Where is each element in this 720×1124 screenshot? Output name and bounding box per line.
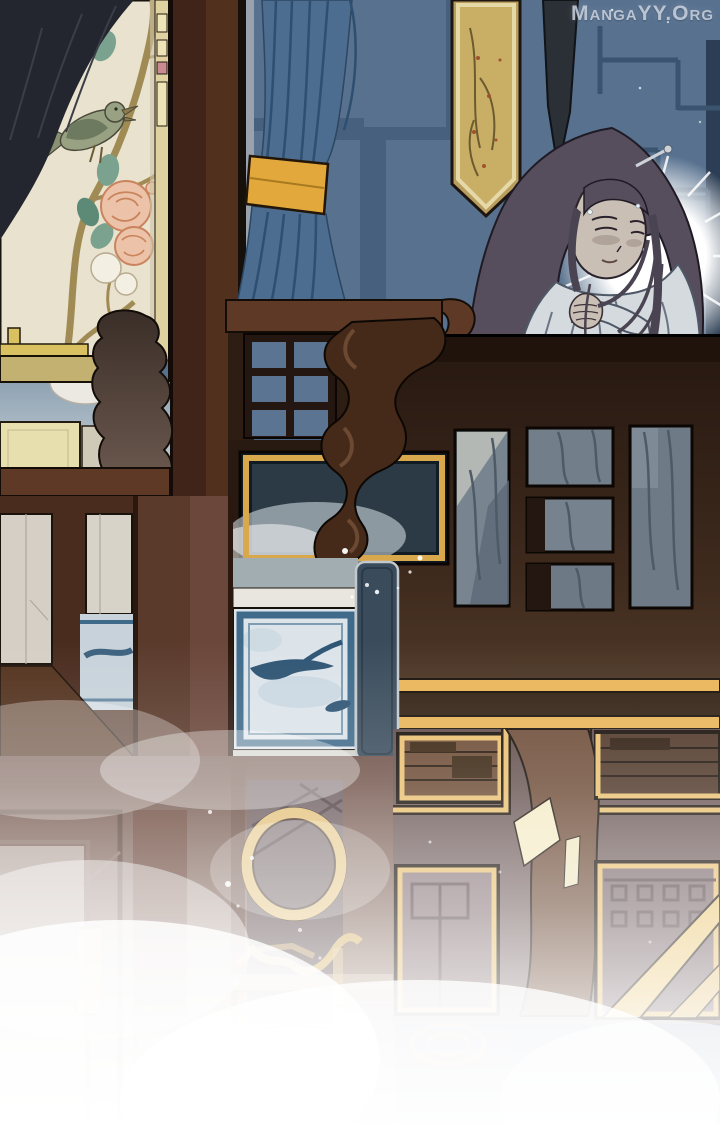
webtoon-panel: MangaYY.Org	[0, 0, 720, 1124]
left-rail	[0, 468, 170, 496]
curtain-tie	[246, 156, 328, 214]
site-watermark: MangaYY.Org	[571, 2, 714, 26]
hanging-scroll	[452, 0, 520, 216]
screen-gold-trim	[155, 0, 169, 360]
panel-artwork	[0, 0, 720, 1124]
fog-overlay	[0, 640, 720, 1124]
lattice-window	[244, 334, 336, 438]
